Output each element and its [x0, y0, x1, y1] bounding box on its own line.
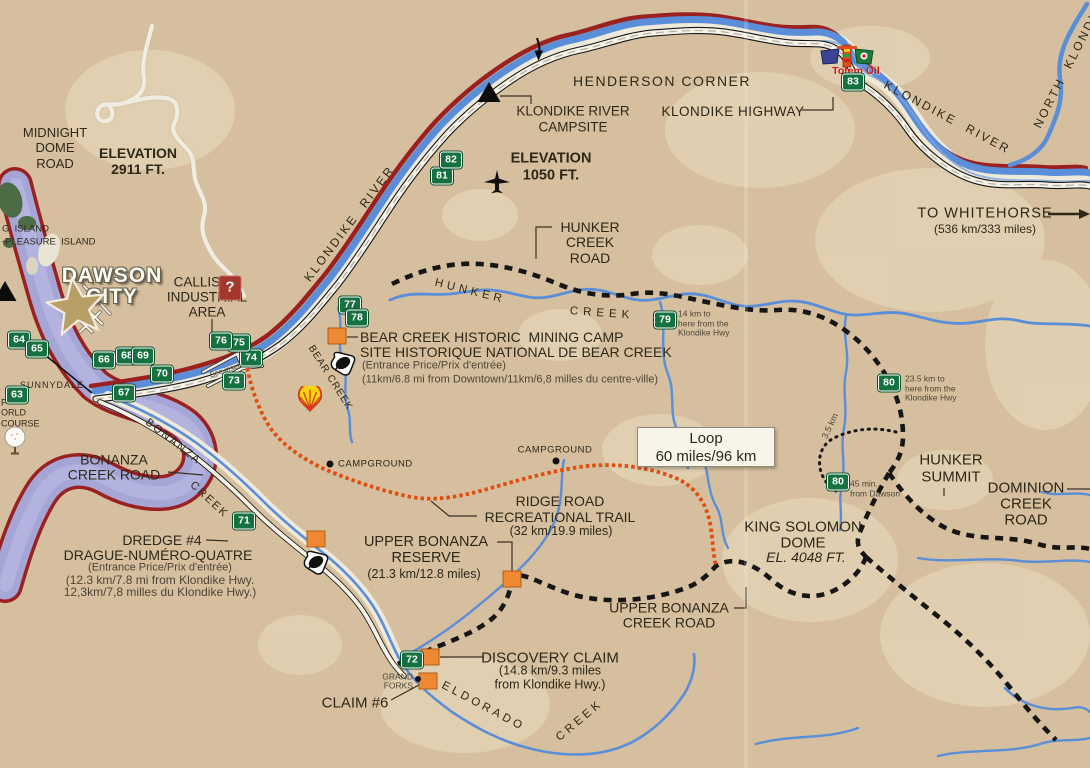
poi-square-claim-6-site [419, 673, 438, 690]
hunker-summit: HUNKER SUMMIT [919, 453, 982, 486]
poi-square-bear-creek-site [328, 328, 347, 345]
km-marker-80: 80 [827, 474, 849, 491]
klondike-river-east: KLONDIKE RIVER [881, 79, 1012, 158]
loop-title: Loop [638, 430, 774, 448]
elevation-1050: ELEVATION 1050 FT. [511, 150, 592, 183]
to-whitehorse: TO WHITEHORSE [917, 206, 1052, 223]
km-marker-83: 83 [842, 74, 864, 91]
km-marker-80: 80 [878, 375, 900, 392]
big-island: G ISLAND [2, 225, 49, 236]
bear-creek-title-fr: SITE HISTORIQUE NATIONAL DE BEAR CREEK [360, 344, 672, 360]
poi-square-discovery-claim-site [421, 649, 440, 666]
loop-distance: 60 miles/96 km [638, 448, 774, 466]
km-marker-74: 74 [240, 350, 262, 367]
dominion-creek-road: DOMINION CREEK ROAD [988, 480, 1065, 527]
ridge-road-trail: RIDGE ROAD RECREATIONAL TRAIL [485, 493, 636, 525]
bear-creek-distance: (11km/6.8 mi from Downtown/11km/6,8 mill… [362, 374, 658, 387]
poi-square-dredge-4-site [307, 531, 326, 548]
airport-icon [484, 170, 510, 196]
marker-79-note: 14 km to here from the Klondike Hwy [678, 310, 730, 339]
golf-course-icon [2, 426, 28, 456]
discovery-claim-distance: (14.8 km/9.3 miles from Klondike Hwy.) [495, 664, 606, 692]
trail-3-5-km: 3.5 km [820, 412, 841, 441]
km-marker-79: 79 [654, 312, 676, 329]
km-marker-71: 71 [233, 513, 255, 530]
km-marker-66: 66 [93, 352, 115, 369]
king-solomon-dome: KING SOLOMON DOME [744, 519, 862, 551]
upper-bonanza-creek-road: UPPER BONANZA CREEK ROAD [609, 601, 729, 632]
campground-dot-icon [327, 461, 334, 468]
upper-bonanza-reserve: UPPER BONANZA RESERVE [364, 535, 488, 567]
campsite-icon [478, 82, 501, 102]
dredge-4-fr: DRAGUE-NUMÉRO-QUATRE [64, 547, 253, 563]
dredge-4: DREDGE #4 [122, 532, 201, 548]
upper-bonanza-reserve-distance: (21.3 km/12.8 miles) [367, 567, 480, 581]
km-marker-76: 76 [210, 333, 232, 350]
klondike-river-west: KLONDIKE RIVER [302, 163, 398, 284]
north-klondike-river: NORTH KLONDIKE [1031, 0, 1090, 131]
km-marker-73: 73 [223, 373, 245, 390]
loop-distance-box: Loop 60 miles/96 km [637, 427, 775, 467]
km-marker-67: 67 [113, 385, 135, 402]
pleasure-island: -PLEASURE ISLAND [2, 238, 95, 249]
poi-square-upper-bonanza-reserve-site [503, 571, 522, 588]
map-labels-layer: Loop 60 miles/96 km MIDNIGHT DOME ROADEL… [0, 0, 1090, 768]
eldorado-creek-word2: CREEK [554, 698, 606, 745]
km-marker-72: 72 [401, 652, 423, 669]
whitehorse-distance: (536 km/333 miles) [934, 223, 1036, 237]
km-marker-81: 81 [431, 168, 453, 185]
marker-80-note-b: 45 min. from Dawson [850, 479, 900, 498]
gold-pan-icon [330, 350, 357, 377]
bonanza-creek-word2: CREEK [187, 479, 231, 521]
marker-80-note-a: 23.5 km to here from the Klondike Hwy [905, 375, 957, 404]
km-marker-63: 63 [6, 387, 28, 404]
klondike-area-map: Loop 60 miles/96 km MIDNIGHT DOME ROADEL… [0, 0, 1090, 768]
hunker-creek-word2: CREEK [569, 305, 634, 323]
settlement-dot-icon [415, 676, 421, 682]
bear-creek-price: (Entrance Price/Prix d'entrée) [362, 360, 506, 373]
dawson-star-icon [45, 276, 107, 336]
km-marker-69: 69 [132, 348, 154, 365]
gold-pan-icon [303, 549, 330, 576]
midnight-dome-road: MIDNIGHT DOME ROAD [23, 125, 87, 171]
campsite-icon [0, 281, 17, 301]
information-icon: ? [219, 276, 242, 301]
grand-forks: GRAND FORKS [382, 673, 413, 692]
river-flow-arrow-icon [532, 38, 544, 62]
campground-dot-icon [553, 458, 560, 465]
campground-mid: CAMPGROUND [518, 446, 593, 457]
km-marker-65: 65 [26, 341, 48, 358]
totem-oil-logo [819, 43, 875, 69]
elevation-2911: ELEVATION 2911 FT. [99, 145, 177, 177]
klondike-highway: KLONDIKE HIGHWAY [661, 104, 804, 120]
sunnydale: SUNNYDALE [20, 380, 84, 390]
km-marker-70: 70 [151, 366, 173, 383]
km-marker-78: 78 [346, 310, 368, 327]
ridge-road-distance: (32 km/19.9 miles) [510, 524, 613, 538]
campground-west: CAMPGROUND [338, 460, 413, 471]
klondike-river-campsite: KLONDIKE RIVER CAMPSITE [516, 103, 629, 134]
shell-gas-icon [296, 386, 324, 412]
bear-creek-title: BEAR CREEK HISTORIC MINING CAMP [360, 329, 623, 345]
dredge-4-distance-2: 12,3km/7,8 milles du Klondike Hwy.) [64, 586, 257, 600]
km-marker-82: 82 [440, 152, 462, 169]
bonanza-creek-road: BONANZA CREEK ROAD [68, 453, 161, 484]
king-solomon-elevation: EL. 4048 FT. [766, 549, 846, 565]
henderson-corner: HENDERSON CORNER [573, 73, 751, 89]
claim-6: CLAIM #6 [322, 694, 389, 711]
hunker-creek-road: HUNKER CREEK ROAD [560, 220, 619, 266]
hunker-creek-word1: HUNKER [433, 277, 507, 307]
